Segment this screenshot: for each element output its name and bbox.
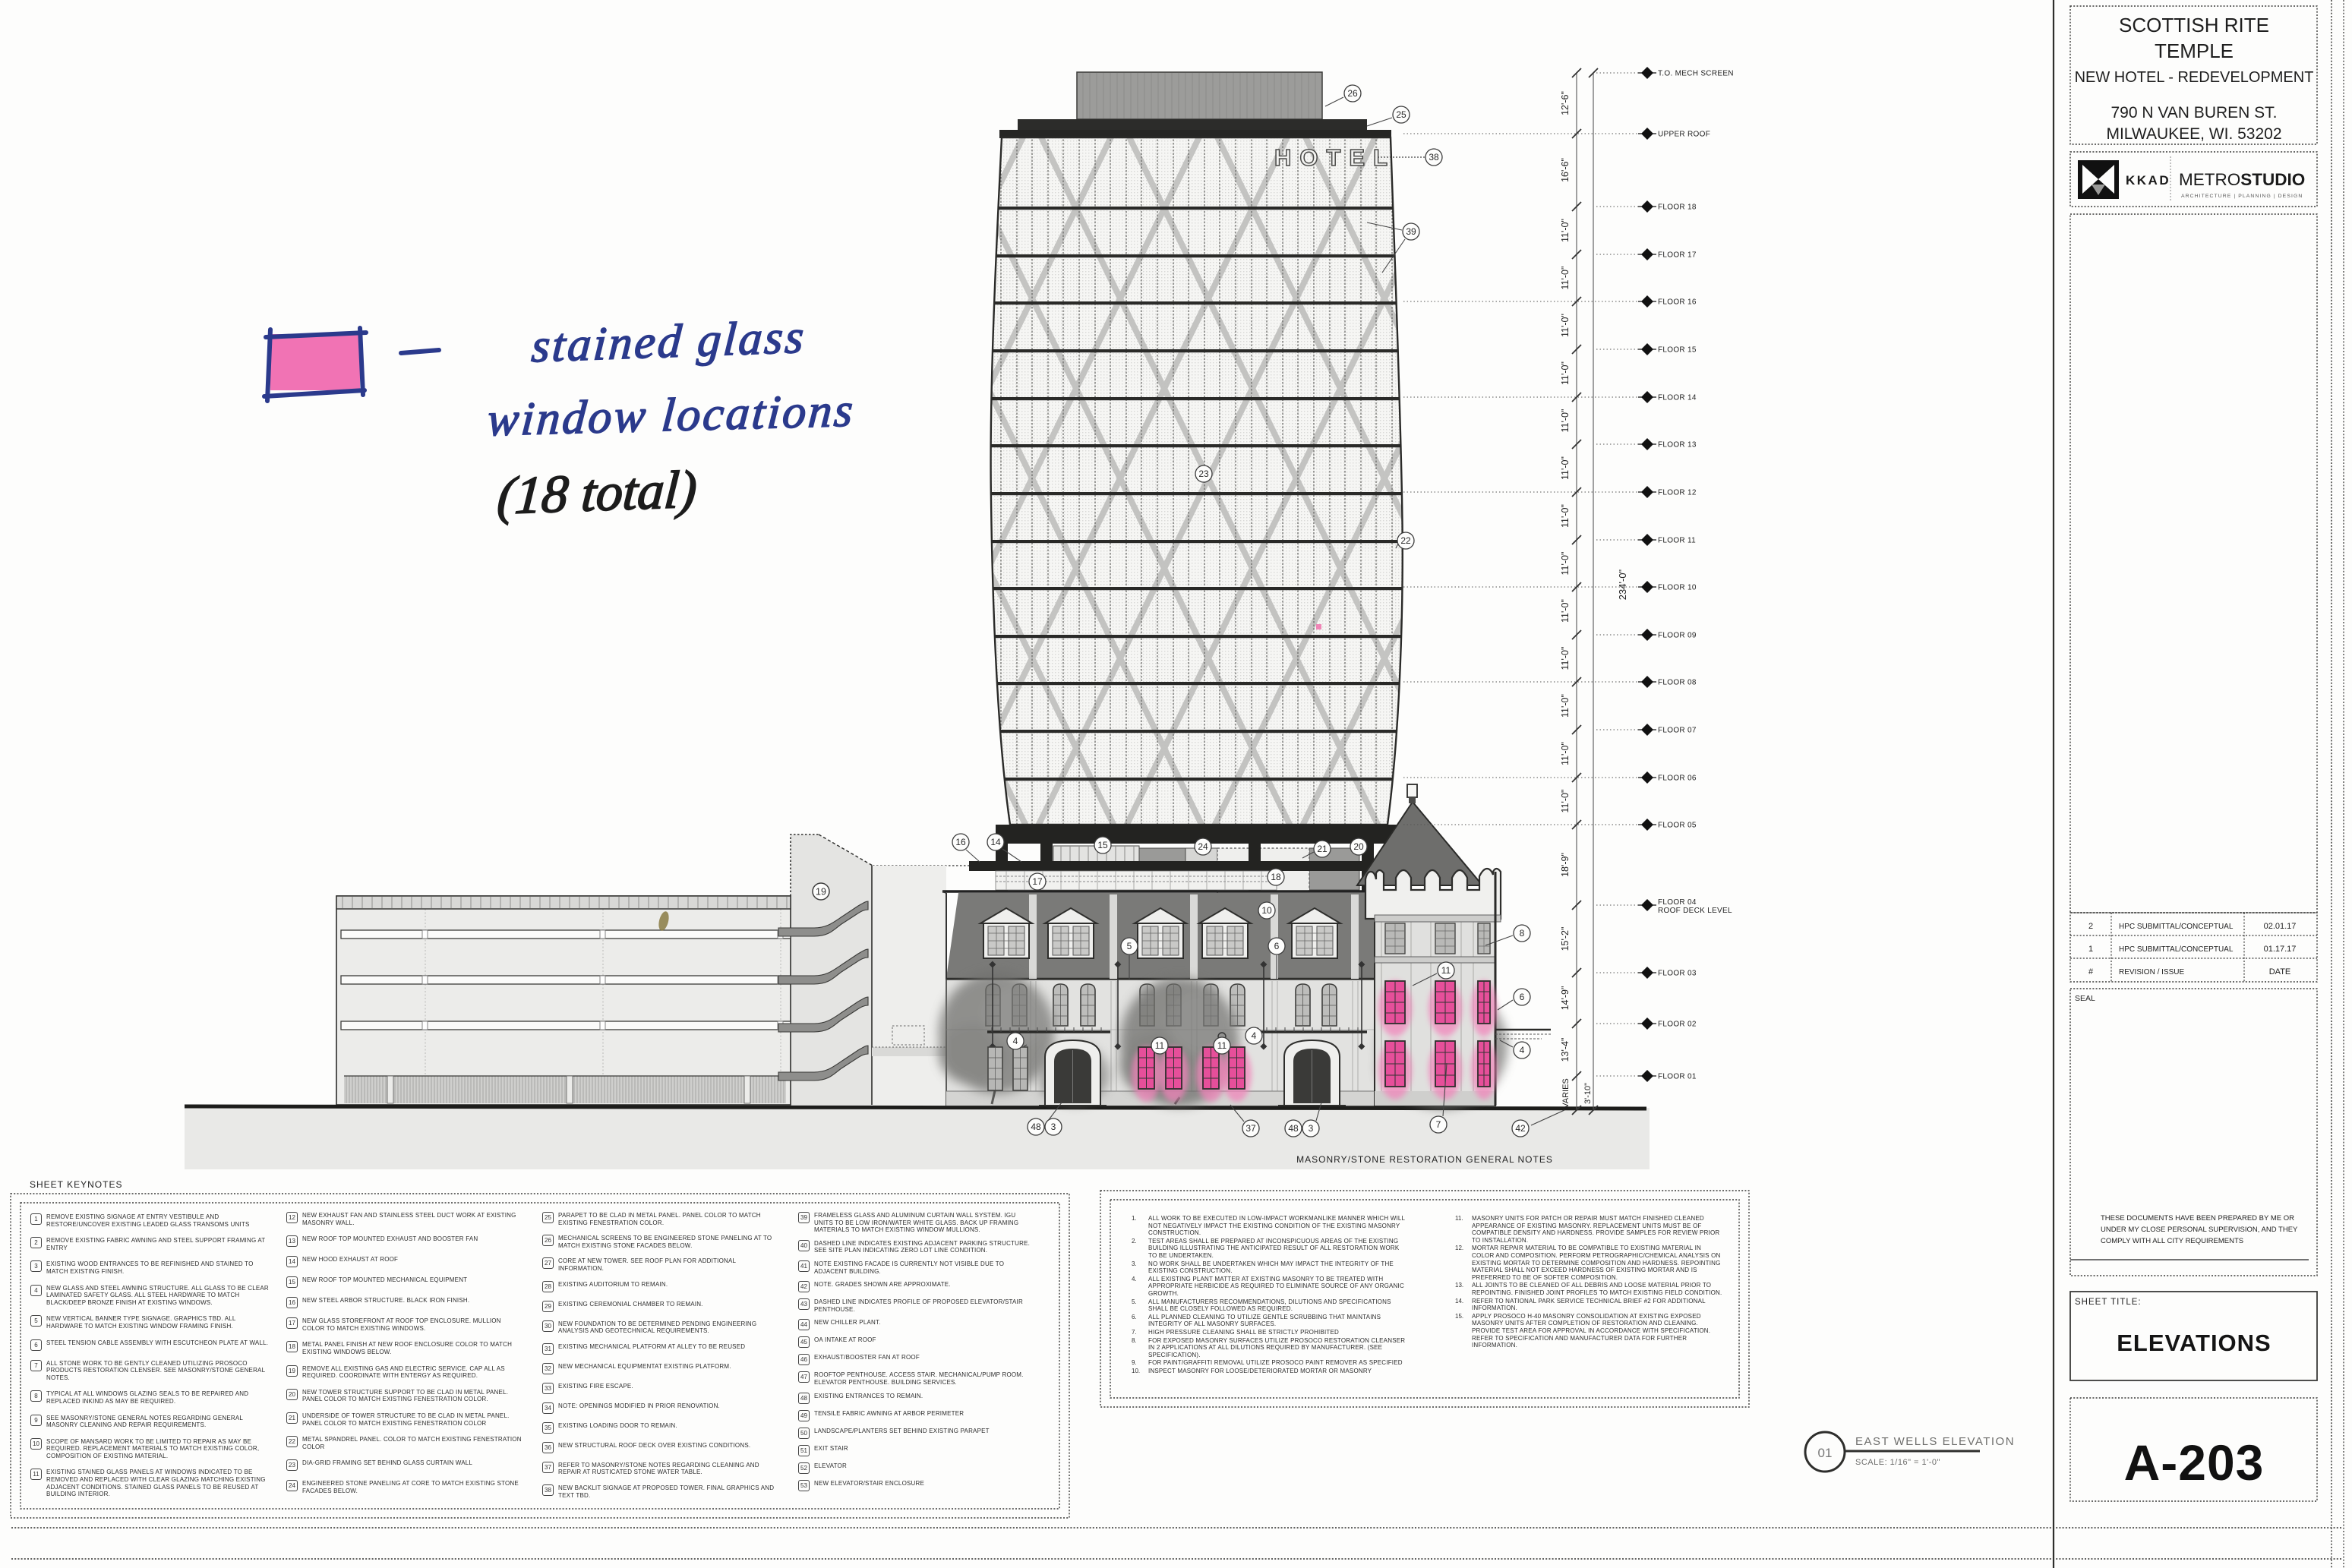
svg-text:01.17.17: 01.17.17 — [2264, 945, 2297, 954]
svg-text:17: 17 — [1032, 876, 1043, 887]
svg-text:A-203: A-203 — [2124, 1434, 2265, 1491]
svg-text:REVISION / ISSUE: REVISION / ISSUE — [2119, 968, 2184, 976]
svg-text:MILWAUKEE, WI. 53202: MILWAUKEE, WI. 53202 — [2106, 125, 2281, 143]
svg-text:11'-0": 11'-0" — [1560, 504, 1571, 528]
svg-text:FLOOR 09: FLOOR 09 — [1658, 632, 1697, 640]
svg-text:11'-0": 11'-0" — [1560, 599, 1571, 623]
svg-text:SCALE: 1/16" = 1'-0": SCALE: 1/16" = 1'-0" — [1855, 1458, 1940, 1467]
svg-text:ROOF DECK LEVEL: ROOF DECK LEVEL — [1658, 907, 1732, 915]
svg-text:NEW HOTEL - REDEVELOPMENT: NEW HOTEL - REDEVELOPMENT — [2075, 69, 2314, 86]
svg-text:26: 26 — [1347, 88, 1358, 99]
svg-text:HPC SUBMITTAL/CONCEPTUAL: HPC SUBMITTAL/CONCEPTUAL — [2119, 945, 2234, 954]
svg-text:22: 22 — [1400, 535, 1411, 546]
svg-text:11'-0": 11'-0" — [1560, 456, 1571, 480]
svg-text:3'-10": 3'-10" — [1583, 1083, 1593, 1104]
svg-text:ARCHITECTURE | PLANNING | DESI: ARCHITECTURE | PLANNING | DESIGN — [2181, 194, 2303, 199]
svg-text:18'-9": 18'-9" — [1560, 853, 1571, 877]
svg-text:FLOOR 15: FLOOR 15 — [1658, 346, 1697, 355]
svg-text:FLOOR 13: FLOOR 13 — [1658, 441, 1697, 450]
svg-text:11: 11 — [1217, 1040, 1227, 1051]
svg-text:14'-9": 14'-9" — [1560, 986, 1571, 1011]
svg-text:3: 3 — [1309, 1123, 1314, 1134]
svg-text:11'-0": 11'-0" — [1560, 219, 1571, 242]
svg-text:37: 37 — [1245, 1123, 1256, 1134]
svg-text:01: 01 — [1818, 1446, 1833, 1460]
svg-text:23: 23 — [1198, 469, 1209, 479]
svg-text:3: 3 — [1051, 1122, 1056, 1132]
svg-text:FLOOR 14: FLOOR 14 — [1658, 394, 1697, 402]
svg-text:HPC SUBMITTAL/CONCEPTUAL: HPC SUBMITTAL/CONCEPTUAL — [2119, 923, 2234, 931]
svg-text:SEAL: SEAL — [2075, 994, 2095, 1003]
svg-text:FLOOR 08: FLOOR 08 — [1658, 679, 1697, 687]
svg-text:SHEET KEYNOTES: SHEET KEYNOTES — [30, 1179, 122, 1190]
svg-text:COMPLY WITH ALL CITY REQUIREME: COMPLY WITH ALL CITY REQUIREMENTS — [2101, 1237, 2243, 1245]
svg-text:FLOOR 02: FLOOR 02 — [1658, 1021, 1697, 1029]
svg-text:48: 48 — [1031, 1122, 1041, 1132]
svg-text:11'-0": 11'-0" — [1560, 647, 1571, 670]
svg-text:18: 18 — [1271, 872, 1281, 882]
svg-text:790 N VAN BUREN ST.: 790 N VAN BUREN ST. — [2110, 104, 2277, 121]
svg-text:KKAD: KKAD — [2126, 173, 2170, 188]
svg-text:FLOOR 16: FLOOR 16 — [1658, 298, 1697, 307]
svg-text:2: 2 — [2088, 922, 2093, 931]
svg-text:11'-0": 11'-0" — [1560, 409, 1571, 433]
svg-text:11'-0": 11'-0" — [1560, 267, 1571, 290]
svg-text:FLOOR 01: FLOOR 01 — [1658, 1073, 1697, 1081]
svg-text:FLOOR 05: FLOOR 05 — [1658, 822, 1697, 830]
svg-text:DATE: DATE — [2269, 967, 2291, 976]
svg-text:UPPER ROOF: UPPER ROOF — [1658, 131, 1710, 139]
svg-text:11: 11 — [1155, 1040, 1165, 1051]
svg-text:11'-0": 11'-0" — [1560, 552, 1571, 576]
svg-text:21: 21 — [1317, 844, 1328, 854]
svg-text:38: 38 — [1429, 152, 1439, 162]
svg-text:METROSTUDIO: METROSTUDIO — [2179, 170, 2305, 189]
svg-text:FLOOR 12: FLOOR 12 — [1658, 489, 1697, 497]
svg-text:EAST WELLS ELEVATION: EAST WELLS ELEVATION — [1855, 1435, 2015, 1448]
svg-text:13'-4": 13'-4" — [1560, 1038, 1571, 1062]
svg-text:11'-0": 11'-0" — [1560, 361, 1571, 385]
svg-text:16'-6": 16'-6" — [1560, 158, 1571, 182]
svg-text:FLOOR 04: FLOOR 04 — [1658, 898, 1697, 907]
svg-text:1: 1 — [2088, 945, 2093, 954]
svg-text:FLOOR 11: FLOOR 11 — [1658, 537, 1696, 545]
svg-text:20: 20 — [1353, 841, 1364, 852]
svg-text:14: 14 — [990, 837, 1001, 847]
svg-text:48: 48 — [1288, 1123, 1299, 1134]
svg-text:15: 15 — [1097, 840, 1108, 850]
svg-text:UNDER MY CLOSE PERSONAL SUPERV: UNDER MY CLOSE PERSONAL SUPERVISION, AND… — [2101, 1226, 2298, 1234]
svg-text:4: 4 — [1252, 1030, 1257, 1041]
svg-text:#: # — [2088, 967, 2094, 976]
svg-text:7: 7 — [1436, 1119, 1441, 1130]
svg-text:MASONRY/STONE RESTORATION GENE: MASONRY/STONE RESTORATION GENERAL NOTES — [1296, 1154, 1553, 1165]
svg-text:10: 10 — [1261, 905, 1272, 916]
svg-text:ELEVATIONS: ELEVATIONS — [2117, 1330, 2271, 1356]
svg-text:FLOOR 17: FLOOR 17 — [1658, 251, 1697, 260]
svg-text:4: 4 — [1013, 1036, 1018, 1046]
svg-text:11'-0": 11'-0" — [1560, 790, 1571, 813]
svg-text:11'-0": 11'-0" — [1560, 694, 1571, 718]
svg-text:19: 19 — [816, 887, 826, 898]
svg-text:FLOOR 07: FLOOR 07 — [1658, 727, 1697, 735]
svg-text:5: 5 — [1127, 941, 1132, 951]
svg-text:234'-0": 234'-0" — [1617, 569, 1628, 600]
svg-text:T.O. MECH SCREEN: T.O. MECH SCREEN — [1658, 70, 1734, 78]
svg-text:FLOOR 03: FLOOR 03 — [1658, 970, 1697, 978]
svg-text:THESE DOCUMENTS HAVE BEEN PREP: THESE DOCUMENTS HAVE BEEN PREPARED BY ME… — [2101, 1214, 2294, 1223]
svg-text:02.01.17: 02.01.17 — [2264, 922, 2297, 931]
svg-text:8: 8 — [1520, 928, 1525, 939]
svg-text:12'-6": 12'-6" — [1560, 91, 1571, 115]
svg-text:15'-2": 15'-2" — [1560, 927, 1571, 951]
svg-text:SHEET TITLE:: SHEET TITLE: — [2075, 1298, 2142, 1307]
svg-text:11'-0": 11'-0" — [1560, 314, 1571, 337]
svg-text:SCOTTISH RITE: SCOTTISH RITE — [2119, 14, 2269, 36]
svg-text:VARIES: VARIES — [1561, 1078, 1571, 1109]
svg-text:25: 25 — [1396, 109, 1406, 120]
svg-text:11: 11 — [1441, 965, 1451, 976]
svg-text:FLOOR 18: FLOOR 18 — [1658, 203, 1697, 212]
svg-text:FLOOR 10: FLOOR 10 — [1658, 584, 1697, 592]
svg-text:11'-0": 11'-0" — [1560, 742, 1571, 765]
svg-text:TEMPLE: TEMPLE — [2155, 39, 2234, 62]
svg-text:16: 16 — [955, 837, 966, 847]
svg-text:42: 42 — [1515, 1123, 1526, 1134]
svg-text:6: 6 — [1274, 941, 1280, 951]
svg-text:FLOOR 06: FLOOR 06 — [1658, 775, 1697, 783]
svg-text:4: 4 — [1520, 1045, 1525, 1055]
svg-text:24: 24 — [1198, 841, 1208, 852]
svg-text:6: 6 — [1520, 992, 1525, 1002]
svg-text:39: 39 — [1406, 226, 1416, 237]
